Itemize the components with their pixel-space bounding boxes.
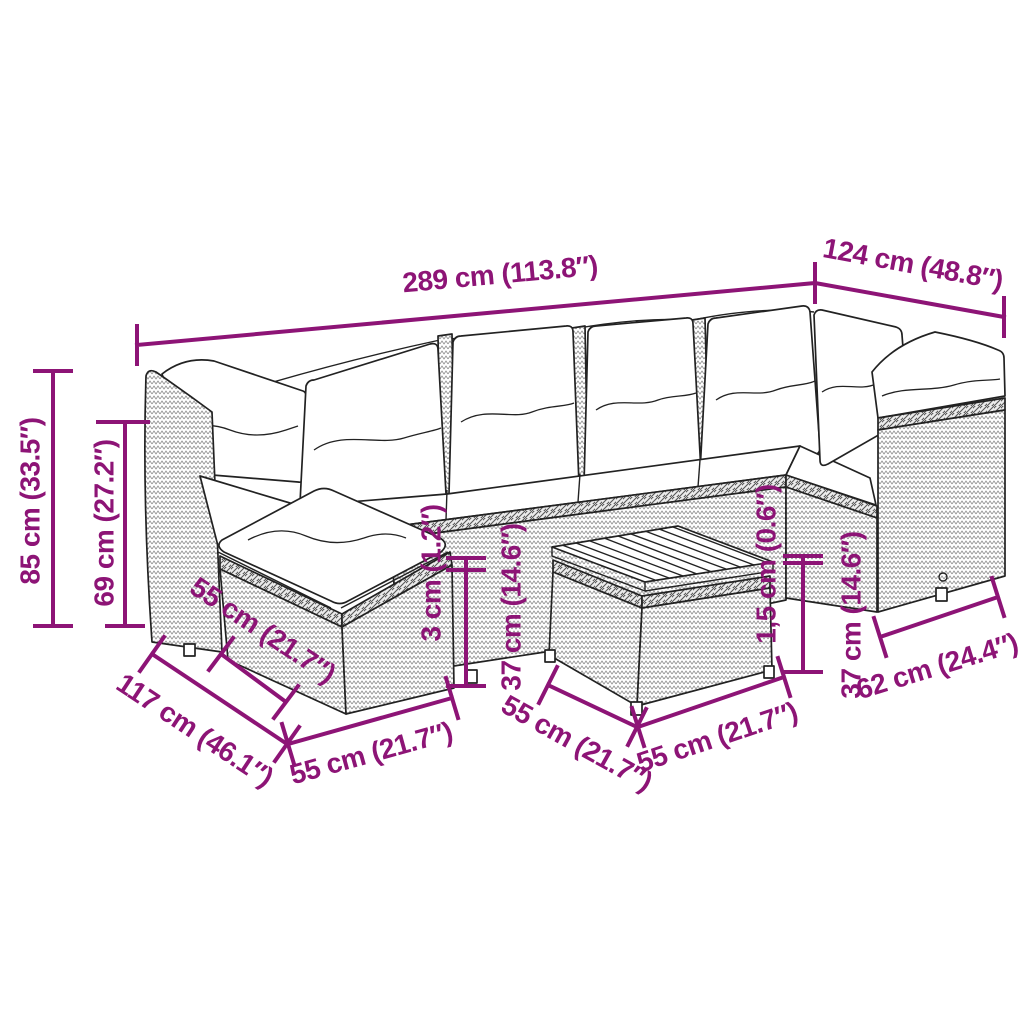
dim-seat-height-label: 37 cm (14.6″): [496, 523, 527, 690]
dim-tabletop-thickness-label: 1,5 cm (0.6″): [751, 484, 782, 643]
back-pillow: [449, 326, 579, 500]
dim-return-depth-label: 124 cm (48.8″): [821, 232, 1006, 296]
dim-left-total-depth-label: 117 cm (46.1″): [111, 667, 279, 793]
armrest-panel: [878, 410, 1005, 612]
foot: [545, 650, 555, 662]
foot: [936, 588, 947, 601]
dim-backrest-height-label: 69 cm (27.2″): [89, 439, 120, 606]
dim-ottoman-width-label: 55 cm (21.7″): [286, 716, 455, 791]
furniture-diagram-svg: 289 cm (113.8″) 124 cm (48.8″) 85 cm (33…: [0, 0, 1024, 1024]
dimension-diagram: 289 cm (113.8″) 124 cm (48.8″) 85 cm (33…: [0, 0, 1024, 1024]
dim-seat-cushion-thickness-label: 3 cm (1.2″): [416, 504, 447, 641]
foot: [764, 666, 774, 678]
dim-table-width-label: 55 cm (21.7″): [633, 696, 801, 778]
dim-overall-length-label: 289 cm (113.8″): [401, 250, 599, 299]
dim-armrest-depth-label: 62 cm (24.4″): [853, 627, 1022, 706]
foot: [184, 644, 195, 656]
dim-total-height-label: 85 cm (33.5″): [15, 417, 46, 584]
